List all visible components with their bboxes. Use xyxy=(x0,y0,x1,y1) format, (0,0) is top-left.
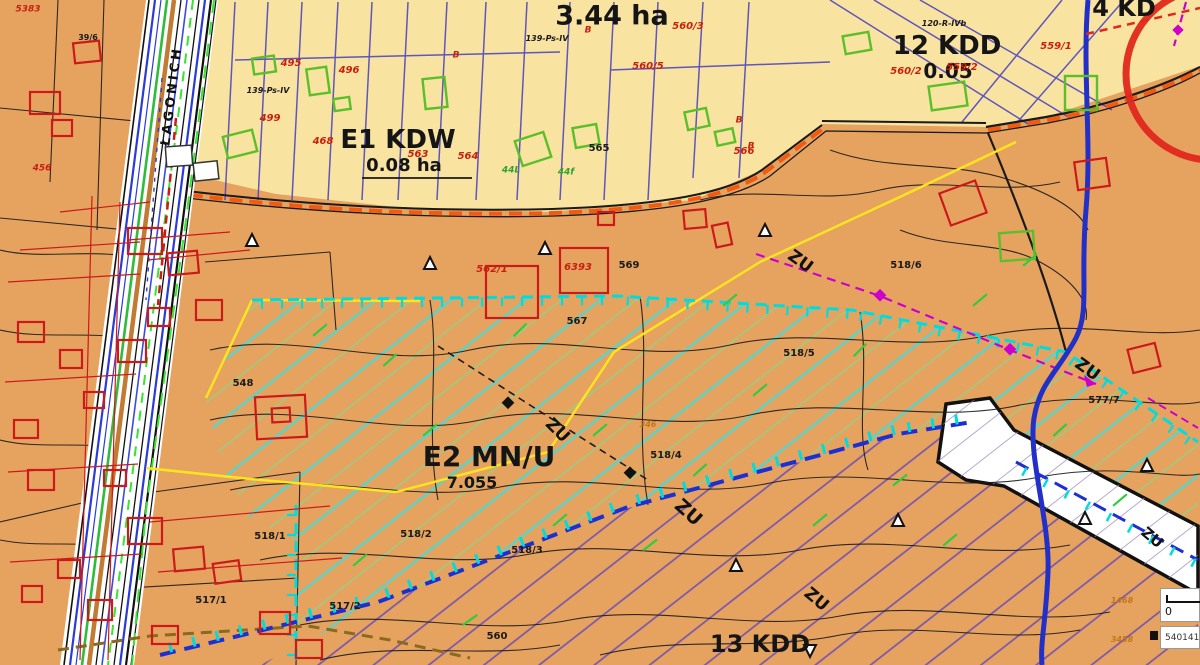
map-canvas xyxy=(0,0,1200,665)
zoning-map[interactable]: 3.44 ha12 KDD0.05E1 KDW0.08 haE2 MN/U7.0… xyxy=(0,0,1200,665)
scale-tick xyxy=(1166,595,1168,601)
coordinate-box: 540141 xyxy=(1160,626,1200,649)
scale-bar xyxy=(1166,601,1200,603)
coordinate-value: 540141 xyxy=(1165,633,1199,643)
coordinate-marker-icon xyxy=(1150,631,1158,640)
scale-widget: 0 xyxy=(1160,588,1200,622)
scale-zero-label: 0 xyxy=(1165,605,1172,618)
